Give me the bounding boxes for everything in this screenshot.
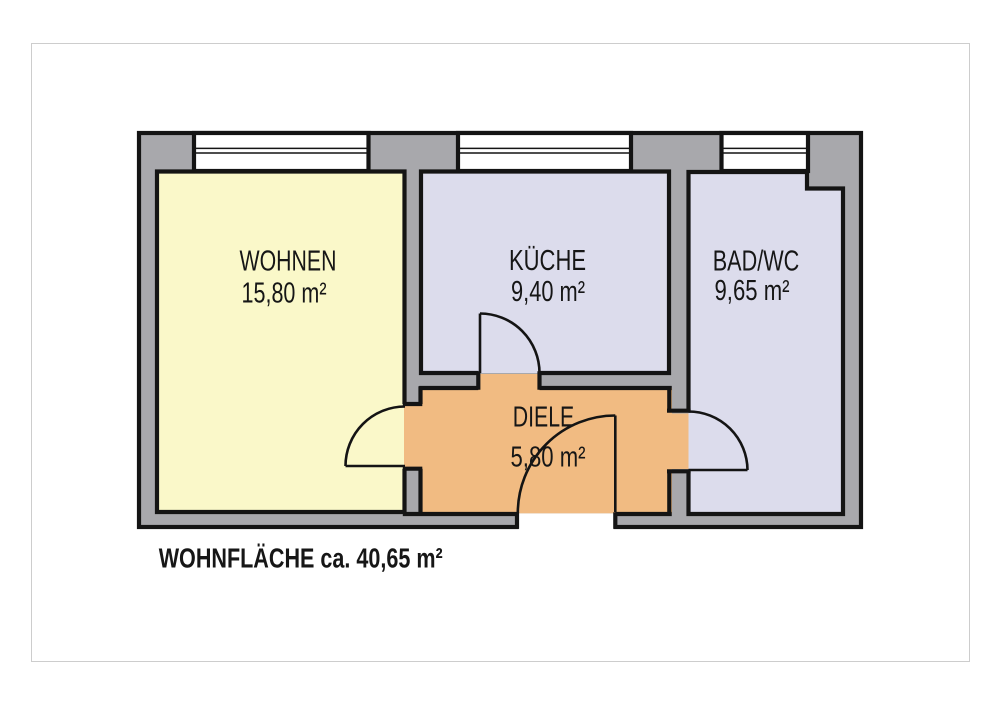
svg-text:9,65 m²: 9,65 m²: [715, 275, 790, 307]
svg-text:DIELE: DIELE: [513, 402, 575, 434]
svg-text:BAD/WC: BAD/WC: [713, 245, 800, 277]
svg-text:WOHNEN: WOHNEN: [240, 246, 337, 278]
svg-text:5,80 m²: 5,80 m²: [511, 442, 586, 474]
svg-text:15,80 m²: 15,80 m²: [242, 278, 327, 310]
svg-text:9,40 m²: 9,40 m²: [511, 276, 585, 308]
svg-text:KÜCHE: KÜCHE: [509, 245, 586, 277]
svg-text:WOHNFLÄCHE ca. 40,65 m²: WOHNFLÄCHE ca. 40,65 m²: [159, 541, 443, 573]
